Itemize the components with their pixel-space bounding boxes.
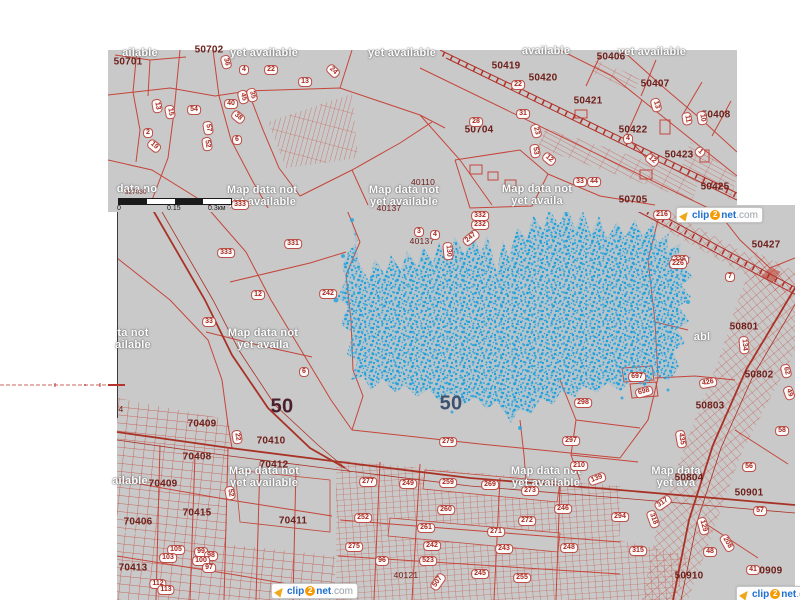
clip2net-text: clip: [752, 589, 769, 600]
clip2net-text: net: [781, 589, 796, 600]
clip2net-icon: [274, 585, 286, 597]
watermarks-layer: clip2net.comclip2net.comclip2net.com: [0, 0, 800, 600]
clip2net-text: clip: [287, 586, 304, 597]
clip2net-text: .com: [736, 210, 758, 221]
clip2net-icon: [679, 209, 691, 221]
clip2net-text: clip: [692, 210, 709, 221]
clip2net-text: 2: [770, 589, 780, 599]
clip2net-text: net: [721, 210, 736, 221]
clip2net-text: 2: [710, 210, 720, 220]
cadastral-map-screenshot: ailableyet availableyet availableavailab…: [0, 0, 800, 600]
clip2net-icon: [739, 588, 751, 600]
clip2net-text: 2: [305, 586, 315, 596]
clip2net-text: .com: [331, 586, 353, 597]
clip2net-text: .com: [796, 589, 800, 600]
clip2net-watermark[interactable]: clip2net.com: [271, 583, 358, 599]
clip2net-text: net: [316, 586, 331, 597]
clip2net-watermark[interactable]: clip2net.com: [676, 207, 763, 223]
clip2net-watermark[interactable]: clip2net.com: [736, 586, 800, 600]
